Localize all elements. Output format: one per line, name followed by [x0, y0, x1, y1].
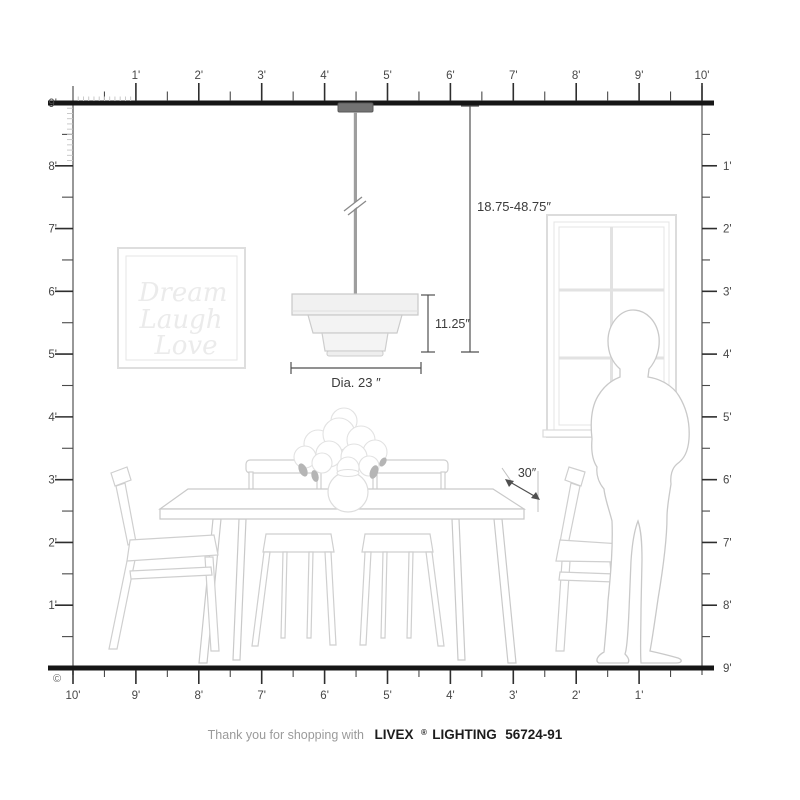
chair-top-rail [111, 467, 131, 486]
chair-stretcher [130, 567, 212, 579]
right-ruler-label: 4' [723, 349, 732, 361]
dining-chair-back-right [360, 460, 448, 646]
product-dimension-diagram: Dream Laugh Love [0, 0, 800, 800]
bottom-ruler-label: 8' [195, 690, 204, 702]
table-leg [452, 519, 465, 660]
chair-seat [127, 535, 218, 561]
pendant-fixture [292, 103, 418, 356]
arrowhead [531, 492, 540, 500]
chair-leg [360, 552, 371, 645]
footer-product-line: LIGHTING [432, 727, 497, 742]
shade-tier-2 [308, 315, 402, 333]
chair-seat [263, 534, 334, 552]
bottom-ruler-label: 7' [257, 690, 266, 702]
table-leg [233, 519, 246, 660]
drum-shade [292, 294, 418, 356]
wall-art-frame: Dream Laugh Love [118, 248, 245, 368]
diameter-label: Dia. 23 ″ [331, 375, 381, 390]
right-ruler-label: 2' [723, 224, 732, 236]
left-ruler-label: 6' [48, 286, 57, 298]
chair-top-rail [565, 467, 585, 486]
chair-leg [252, 552, 270, 646]
left-ruler-label: 5' [48, 349, 57, 361]
chair-leg [325, 552, 336, 645]
chair-seat [362, 534, 433, 552]
left-ruler-label: 2' [48, 537, 57, 549]
left-ruler-label: 9' [48, 98, 57, 110]
chair-stretcher [559, 572, 615, 582]
chair-leg [407, 552, 413, 638]
left-ruler-label: 8' [48, 161, 57, 173]
chair-leg [307, 552, 313, 638]
left-ruler-label: 3' [48, 475, 57, 487]
right-ruler-label: 9' [723, 663, 732, 675]
bottom-ruler-label: 3' [509, 690, 518, 702]
bottom-ruler-label: 6' [320, 690, 329, 702]
chair-leg [281, 552, 287, 638]
bottom-ruler-label: 5' [383, 690, 392, 702]
chair-back-post [560, 483, 580, 545]
bottom-ruler-label: 1' [635, 690, 644, 702]
top-ruler-label: 7' [509, 70, 518, 82]
bottom-ruler-label: 9' [132, 690, 141, 702]
top-ruler-label: 3' [257, 70, 266, 82]
right-ruler-label: 1' [723, 161, 732, 173]
vase-rim [337, 470, 359, 477]
top-ruler-label: 6' [446, 70, 455, 82]
hanging-height-dimension: 18.75-48.75″ [461, 106, 551, 352]
table-depth-label: 30″ [518, 466, 537, 480]
chair-leg [381, 552, 387, 638]
right-ruler-label: 6' [723, 475, 732, 487]
vase [328, 472, 368, 512]
bottom-ruler-label: 4' [446, 690, 455, 702]
right-ruler-label: 3' [723, 286, 732, 298]
hanging-height-label: 18.75-48.75″ [477, 199, 551, 214]
fixture-height-label: 11.25″ [435, 317, 470, 331]
diameter-dimension: Dia. 23 ″ [291, 362, 421, 390]
chair-back-post [116, 483, 136, 545]
fixture-height-dimension: 11.25″ [421, 295, 470, 352]
bottom-ruler-label: 10' [66, 690, 81, 702]
left-ruler-label: 1' [48, 600, 57, 612]
left-ruler-label: 7' [48, 224, 57, 236]
registered-trademark-icon: ® [421, 728, 427, 737]
shade-tier-1 [292, 294, 418, 315]
top-ruler-label: 10' [695, 70, 710, 82]
right-ruler-label: 8' [723, 600, 732, 612]
top-ruler-label: 8' [572, 70, 581, 82]
top-ruler-label: 4' [320, 70, 329, 82]
footer-prefix: Thank you for shopping with [208, 728, 364, 742]
right-ruler-label: 5' [723, 412, 732, 424]
footer-brand: LIVEX [374, 727, 413, 742]
top-ruler-label: 5' [383, 70, 392, 82]
shade-tier-3 [322, 333, 388, 351]
wall-art-text-line1: Dream [138, 278, 228, 308]
wall-art-text-line3: Love [154, 331, 218, 361]
footer-thank-you-line: Thank you for shopping with LIVEX ® LIGH… [208, 722, 563, 743]
copyright-icon: © [53, 673, 61, 685]
chair-leg [426, 552, 444, 646]
left-ruler-label: 4' [48, 412, 57, 424]
ceiling-canopy [338, 103, 373, 112]
dining-chair-back-left [246, 460, 336, 646]
chair-post [441, 472, 445, 490]
table-leg [494, 519, 516, 663]
top-ruler-label: 9' [635, 70, 644, 82]
chair-post [249, 472, 253, 490]
top-ruler-label: 1' [132, 70, 141, 82]
bottom-ruler-label: 2' [572, 690, 581, 702]
top-ruler-label: 2' [195, 70, 204, 82]
right-ruler-label: 7' [723, 537, 732, 549]
scene-canvas: Dream Laugh Love [0, 0, 800, 800]
shade-bottom-lip [327, 351, 383, 356]
footer-model-number: 56724-91 [505, 727, 563, 742]
